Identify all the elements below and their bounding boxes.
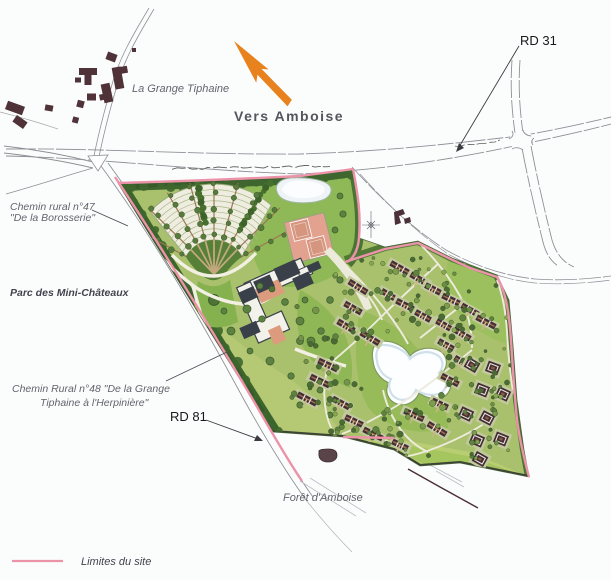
svg-text:RD 81: RD 81 [170,409,207,424]
svg-text:"De la Borosserie": "De la Borosserie" [10,212,96,224]
svg-text:RD 31: RD 31 [520,33,557,48]
svg-text:La Grange Tiphaine: La Grange Tiphaine [132,83,229,95]
svg-text:Tiphaine à l'Herpinière": Tiphaine à l'Herpinière" [40,397,150,409]
svg-text:Parc des Mini-Châteaux: Parc des Mini-Châteaux [10,287,130,299]
svg-text:Forêt d'Amboise: Forêt d'Amboise [283,492,363,504]
svg-text:Limites du site: Limites du site [81,556,151,568]
svg-text:Vers Amboise: Vers Amboise [234,108,344,124]
svg-text:Chemin Rural n°48 "De la Grang: Chemin Rural n°48 "De la Grange [12,383,170,395]
